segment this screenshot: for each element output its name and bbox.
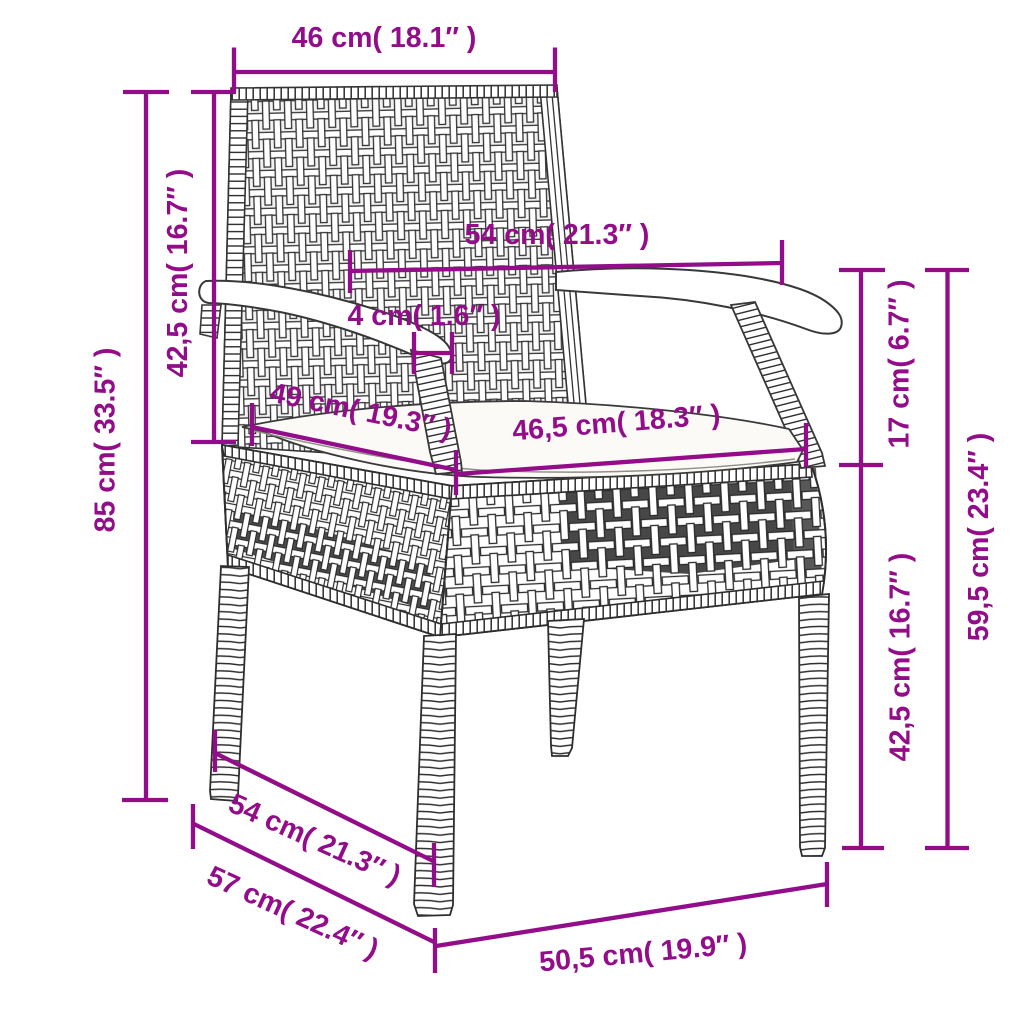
- svg-text:85 cm( 33.5″ ): 85 cm( 33.5″ ): [90, 348, 122, 533]
- svg-text:42,5 cm( 16.7″ ): 42,5 cm( 16.7″ ): [162, 169, 194, 378]
- svg-text:42,5 cm( 16.7″ ): 42,5 cm( 16.7″ ): [885, 553, 917, 762]
- svg-text:17 cm( 6.7″ ): 17 cm( 6.7″ ): [884, 280, 916, 449]
- svg-text:54 cm( 21.3″ ): 54 cm( 21.3″ ): [465, 219, 650, 251]
- svg-text:4 cm( 1.6″ ): 4 cm( 1.6″ ): [347, 300, 500, 332]
- svg-text:46 cm( 18.1″ ): 46 cm( 18.1″ ): [292, 22, 477, 54]
- svg-text:59,5 cm( 23.4″ ): 59,5 cm( 23.4″ ): [963, 433, 995, 642]
